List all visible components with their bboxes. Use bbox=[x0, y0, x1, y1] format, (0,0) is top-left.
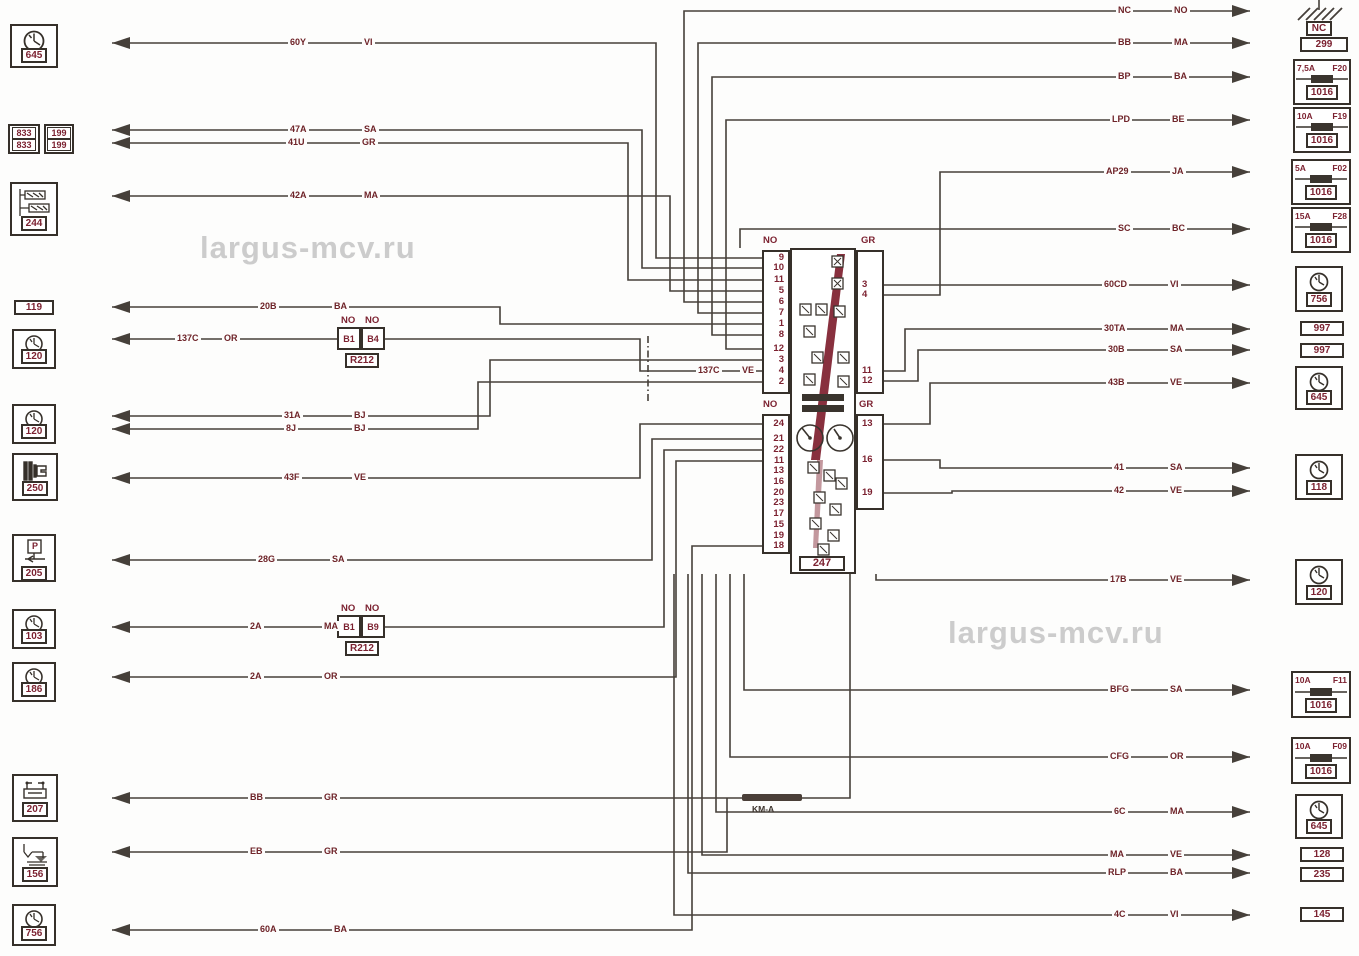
wire-color: SA bbox=[330, 554, 347, 564]
inline-connector-id: R212 bbox=[345, 353, 379, 368]
component-id: 207 bbox=[22, 802, 49, 817]
pin-number: 12 bbox=[862, 376, 880, 386]
wire-color: SA bbox=[1168, 462, 1185, 472]
wire-number: BFG bbox=[1108, 684, 1131, 694]
fuse-icon bbox=[1296, 122, 1348, 132]
wire-number: 47A bbox=[288, 124, 309, 134]
wire-color: VI bbox=[1168, 909, 1181, 919]
component-id: 833 bbox=[12, 139, 35, 151]
heater-resistor-icon bbox=[17, 187, 51, 216]
pin-number: 4 bbox=[862, 290, 880, 300]
component-120: 120 bbox=[12, 404, 56, 444]
wire-color: BA bbox=[1172, 71, 1189, 81]
connector-pin-cell: B1 bbox=[337, 615, 361, 638]
pin-number: 24 bbox=[766, 419, 784, 429]
wire-color: MA bbox=[1168, 806, 1186, 816]
component-id: 199 bbox=[47, 127, 70, 139]
wire-color: MA bbox=[1172, 37, 1190, 47]
fuse-F20: 7,5A F20 1016 bbox=[1293, 59, 1351, 105]
component-997: 997 bbox=[1300, 343, 1344, 358]
wire-color: OR bbox=[1168, 751, 1186, 761]
fuse-rating: 10A bbox=[1295, 676, 1311, 685]
pin-number: 19 bbox=[862, 488, 880, 498]
clock-icon bbox=[24, 667, 44, 682]
clock-icon bbox=[1308, 799, 1330, 819]
wire-color: OR bbox=[222, 333, 240, 343]
component-id: 120 bbox=[1306, 585, 1333, 600]
wire-number: 60CD bbox=[1102, 279, 1129, 289]
pin-number: 3 bbox=[766, 355, 784, 365]
clock-icon bbox=[24, 909, 44, 926]
component-id: 833 bbox=[12, 127, 35, 139]
component-250: 250 bbox=[12, 453, 58, 501]
pin-number: 12 bbox=[766, 344, 784, 354]
connector-label-no: NO bbox=[763, 400, 777, 410]
wire-color: BJ bbox=[352, 423, 368, 433]
ground-label: NC bbox=[1306, 21, 1332, 36]
component-id: 120 bbox=[21, 349, 48, 364]
component-128: 128 bbox=[1300, 847, 1344, 862]
fuse-number: F28 bbox=[1332, 212, 1347, 221]
splice-bar bbox=[742, 794, 802, 801]
wire-color: BJ bbox=[352, 410, 368, 420]
wire-number: BB bbox=[1116, 37, 1133, 47]
wire-color: VI bbox=[362, 37, 375, 47]
component-756: 756 bbox=[12, 904, 56, 946]
clock-icon bbox=[22, 29, 46, 48]
wire-color: GR bbox=[322, 792, 340, 802]
component-id: 645 bbox=[1306, 390, 1333, 405]
fuel-sender-icon bbox=[19, 842, 51, 867]
pin-number: 16 bbox=[766, 477, 784, 487]
wiring-diagram: largus-mcv.ru largus-mcv.ru bbox=[0, 0, 1359, 956]
component-205: P 205 bbox=[12, 534, 56, 582]
wire-number: 8J bbox=[284, 423, 298, 433]
connector-label-gr: GR bbox=[861, 236, 875, 246]
wire-color: GR bbox=[360, 137, 378, 147]
splice-label: KM-A bbox=[752, 804, 774, 814]
fuse-rating: 15A bbox=[1295, 212, 1311, 221]
wire-number: SC bbox=[1116, 223, 1133, 233]
component-id: 645 bbox=[1306, 819, 1333, 834]
fuse-icon bbox=[1295, 222, 1347, 232]
fuse-F09: 10A F09 1016 bbox=[1291, 737, 1351, 784]
speed-sensor-icon bbox=[20, 458, 50, 481]
clock-icon bbox=[24, 409, 44, 424]
wire-number: LPD bbox=[1110, 114, 1132, 124]
parking-label: P bbox=[32, 541, 38, 551]
connector-label-no: NO bbox=[365, 316, 379, 326]
wire-color: VI bbox=[1168, 279, 1181, 289]
wire-color: VE bbox=[1168, 377, 1184, 387]
pin-number: 10 bbox=[766, 263, 784, 273]
cluster-id-label: 247 bbox=[799, 556, 845, 571]
component-id: 103 bbox=[21, 629, 48, 644]
wire-number: RLP bbox=[1106, 867, 1128, 877]
wire-number: 20B bbox=[258, 301, 279, 311]
wire-color: BA bbox=[332, 924, 349, 934]
component-244: 244 bbox=[10, 182, 58, 236]
wire-color: NO bbox=[1172, 5, 1190, 15]
fuse-icon bbox=[1295, 687, 1347, 697]
component-id: 1016 bbox=[1306, 133, 1338, 148]
connector-label-no: NO bbox=[365, 604, 379, 614]
wire-color: BA bbox=[332, 301, 349, 311]
wire-number: 6C bbox=[1112, 806, 1128, 816]
component-299: 299 bbox=[1300, 37, 1348, 52]
wire-color: GR bbox=[322, 846, 340, 856]
component-id: 1016 bbox=[1306, 85, 1338, 100]
component-199-pair: 199 199 bbox=[44, 124, 74, 154]
pin-number: 5 bbox=[766, 286, 784, 296]
wire-number: 43F bbox=[282, 472, 302, 482]
pin-number: 7 bbox=[766, 308, 784, 318]
wire-color: SA bbox=[1168, 684, 1185, 694]
pin-number: 11 bbox=[766, 275, 784, 285]
wire-number: 4C bbox=[1112, 909, 1128, 919]
wire-number: CFG bbox=[1108, 751, 1131, 761]
wire-number: BP bbox=[1116, 71, 1133, 81]
wire-color: BC bbox=[1170, 223, 1187, 233]
wire-color: VE bbox=[740, 365, 756, 375]
fuse-icon bbox=[1295, 753, 1347, 763]
component-120: 120 bbox=[12, 329, 56, 369]
connector-label-no: NO bbox=[763, 236, 777, 246]
component-756: 756 bbox=[1295, 266, 1343, 312]
wire-number: 30TA bbox=[1102, 323, 1127, 333]
pin-number: 6 bbox=[766, 297, 784, 307]
component-118: 118 bbox=[1295, 454, 1343, 500]
wire-number: 42A bbox=[288, 190, 309, 200]
fuse-F28: 15A F28 1016 bbox=[1291, 207, 1351, 253]
component-id: 244 bbox=[21, 216, 48, 231]
fuse-number: F19 bbox=[1332, 112, 1347, 121]
fuse-number: F02 bbox=[1332, 164, 1347, 173]
component-id: 1016 bbox=[1305, 698, 1337, 713]
fuse-rating: 5A bbox=[1295, 164, 1306, 173]
wire-number: BB bbox=[248, 792, 265, 802]
wire-number: 31A bbox=[282, 410, 303, 420]
wire-number: AP29 bbox=[1104, 166, 1131, 176]
pin-number: 15 bbox=[766, 520, 784, 530]
component-145: 145 bbox=[1300, 907, 1344, 922]
clock-icon bbox=[24, 334, 44, 349]
component-645: 645 bbox=[1295, 366, 1343, 410]
wire-number: 137C bbox=[175, 333, 201, 343]
wire-color: SA bbox=[1168, 344, 1185, 354]
component-id: 756 bbox=[21, 926, 48, 941]
component-id: 1016 bbox=[1305, 185, 1337, 200]
wire-color: OR bbox=[322, 671, 340, 681]
component-id: 156 bbox=[22, 867, 49, 882]
component-645: 645 bbox=[10, 24, 58, 68]
fuse-F02: 5A F02 1016 bbox=[1291, 159, 1351, 205]
wire-number: 41 bbox=[1112, 462, 1126, 472]
clock-icon bbox=[1308, 564, 1330, 585]
component-119: 119 bbox=[14, 300, 54, 315]
wire-number: 43B bbox=[1106, 377, 1127, 387]
component-156: 156 bbox=[12, 837, 58, 887]
pin-number: 23 bbox=[766, 498, 784, 508]
connector-label-no: NO bbox=[341, 316, 355, 326]
component-645: 645 bbox=[1295, 794, 1343, 839]
clock-icon bbox=[24, 614, 44, 629]
fuse-number: F09 bbox=[1332, 742, 1347, 751]
component-id: 186 bbox=[21, 682, 48, 697]
wire-color: VE bbox=[1168, 849, 1184, 859]
pin-number: 2 bbox=[766, 377, 784, 387]
fuse-number: F11 bbox=[1333, 676, 1347, 685]
fuse-rating: 10A bbox=[1297, 112, 1313, 121]
wire-number: 17B bbox=[1108, 574, 1129, 584]
component-id: 199 bbox=[47, 139, 70, 151]
wire-number: EB bbox=[248, 846, 265, 856]
pin-number: 18 bbox=[766, 541, 784, 551]
clock-icon bbox=[1308, 459, 1330, 480]
wire-color: BE bbox=[1170, 114, 1187, 124]
pin-number: 4 bbox=[766, 366, 784, 376]
wire-color: VE bbox=[1168, 574, 1184, 584]
component-id: 120 bbox=[21, 424, 48, 439]
wire-color: JA bbox=[1170, 166, 1186, 176]
fuse-rating: 7,5A bbox=[1297, 64, 1315, 73]
fuse-F11: 10A F11 1016 bbox=[1291, 671, 1351, 718]
pin-number: 13 bbox=[862, 419, 880, 429]
fuse-number: F20 bbox=[1332, 64, 1347, 73]
wire-number: MA bbox=[1108, 849, 1126, 859]
wire-number: 2A bbox=[248, 671, 264, 681]
connector-pin-cell: B9 bbox=[361, 615, 385, 638]
wire-color: MA bbox=[322, 621, 340, 631]
wire-color: BA bbox=[1168, 867, 1185, 877]
component-186: 186 bbox=[12, 662, 56, 702]
wire-number: 137C bbox=[696, 365, 722, 375]
fuse-F19: 10A F19 1016 bbox=[1293, 107, 1351, 153]
clock-icon bbox=[1308, 371, 1330, 390]
wire-color: VE bbox=[352, 472, 368, 482]
component-120: 120 bbox=[1295, 559, 1343, 605]
fuse-rating: 10A bbox=[1295, 742, 1311, 751]
inline-connector-id: R212 bbox=[345, 641, 379, 656]
component-103: 103 bbox=[12, 609, 56, 649]
wire-number: 41U bbox=[286, 137, 307, 147]
component-207: 207 bbox=[12, 774, 58, 822]
component-235: 235 bbox=[1300, 867, 1344, 882]
pin-number: 8 bbox=[766, 330, 784, 340]
connector-pin-cell: B1 bbox=[337, 327, 361, 350]
connector-pin-cell: B4 bbox=[361, 327, 385, 350]
pin-number: 21 bbox=[766, 434, 784, 444]
pin-number: 22 bbox=[766, 445, 784, 455]
component-997: 997 bbox=[1300, 321, 1344, 336]
wire-number: 60A bbox=[258, 924, 279, 934]
component-id: 205 bbox=[21, 566, 48, 581]
wire-number: 60Y bbox=[288, 37, 308, 47]
wire-color: SA bbox=[362, 124, 379, 134]
connector-label-no: NO bbox=[341, 604, 355, 614]
pin-number: 17 bbox=[766, 509, 784, 519]
clock-icon bbox=[1308, 271, 1330, 292]
component-833-pair: 833 833 bbox=[8, 124, 40, 154]
connector-label-gr: GR bbox=[859, 400, 873, 410]
component-id: 1016 bbox=[1305, 233, 1337, 248]
component-id: 118 bbox=[1306, 480, 1332, 495]
pin-number: 16 bbox=[862, 455, 880, 465]
wire-number: 42 bbox=[1112, 485, 1126, 495]
fuse-icon bbox=[1296, 74, 1348, 84]
wire-number: 30B bbox=[1106, 344, 1127, 354]
wire-color: MA bbox=[1168, 323, 1186, 333]
wire-number: 2A bbox=[248, 621, 264, 631]
relay-icon bbox=[19, 779, 51, 802]
wire-color: MA bbox=[362, 190, 380, 200]
pin-number: 1 bbox=[766, 319, 784, 329]
fuse-icon bbox=[1295, 174, 1347, 184]
wire-number: 28G bbox=[256, 554, 277, 564]
instrument-cluster-graphics bbox=[790, 248, 856, 574]
wire-number: NC bbox=[1116, 5, 1133, 15]
component-id: 250 bbox=[22, 481, 49, 496]
wire-color: VE bbox=[1168, 485, 1184, 495]
wire-layer bbox=[0, 0, 1359, 956]
parking-brake-icon: P bbox=[19, 539, 49, 566]
pin-number: 13 bbox=[766, 466, 784, 476]
component-id: 756 bbox=[1306, 292, 1333, 307]
component-id: 1016 bbox=[1305, 764, 1337, 779]
component-id: 645 bbox=[21, 48, 48, 63]
